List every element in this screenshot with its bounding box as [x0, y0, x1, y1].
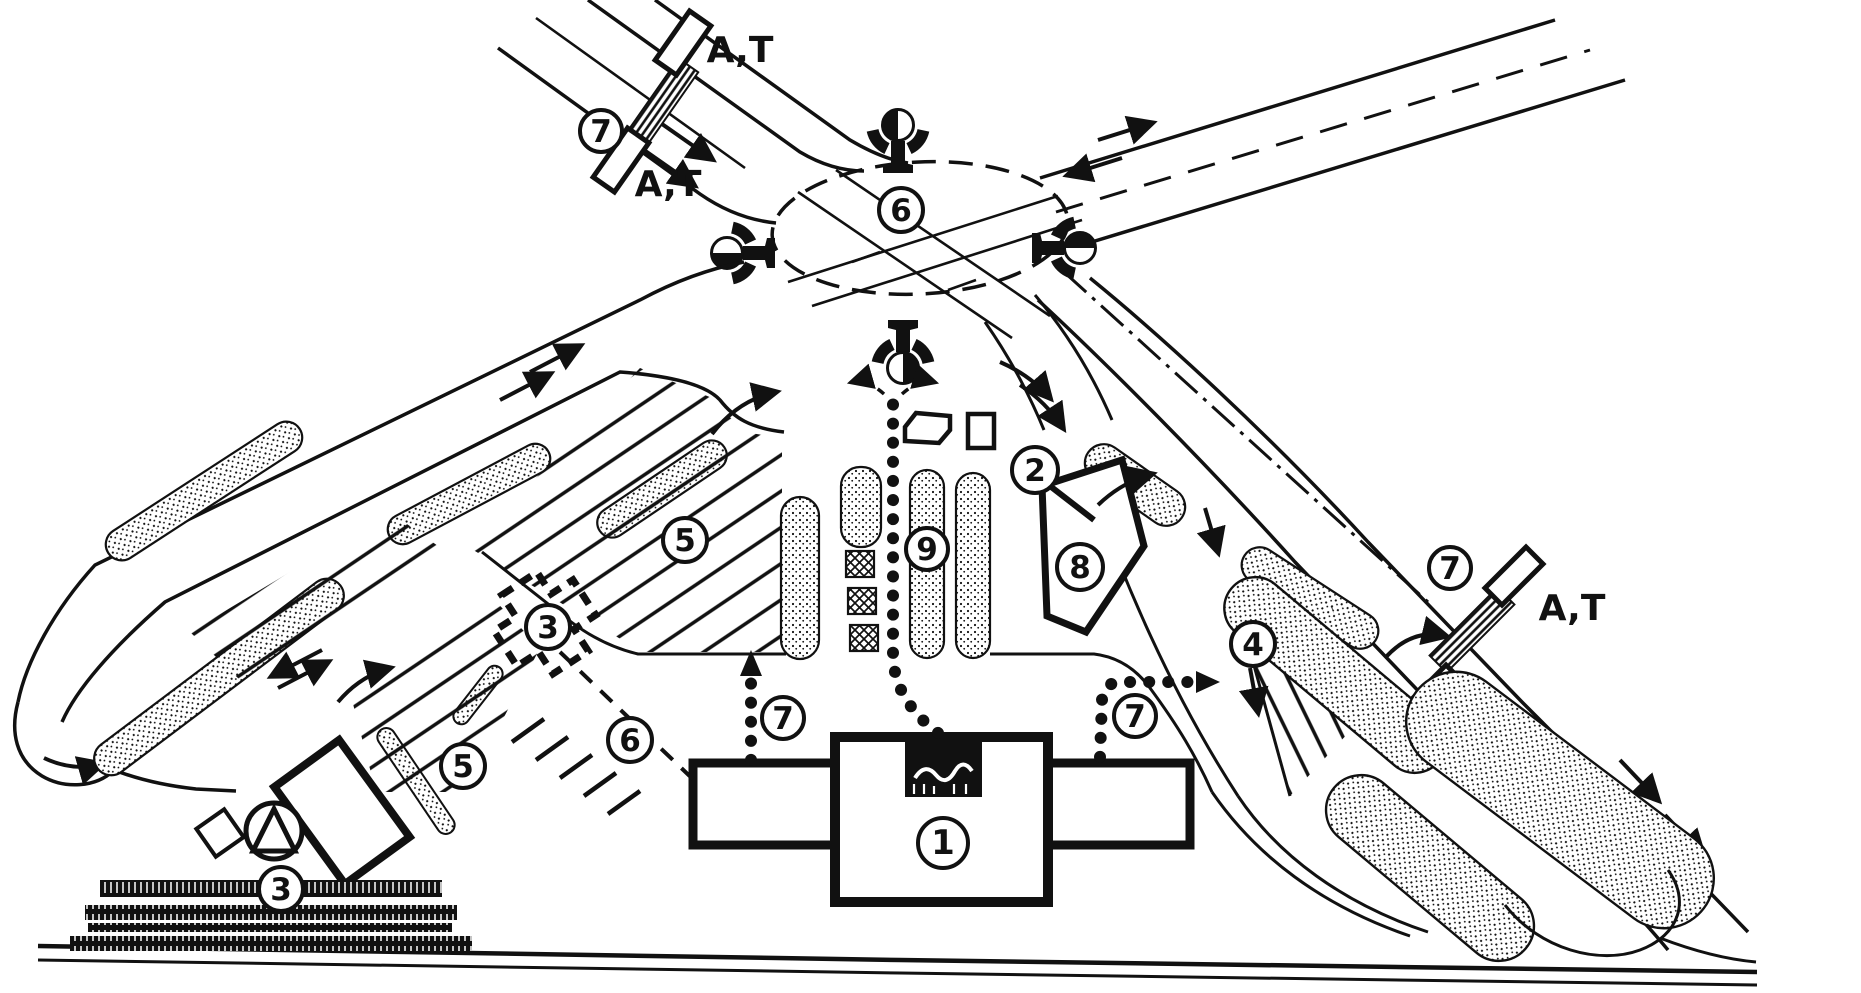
marker-6b-label: 6 — [619, 723, 641, 759]
stop-label-top-left-near: A,T — [635, 164, 702, 205]
marker-7a-label: 7 — [590, 114, 612, 150]
stop-label-top-left-far: A,T — [707, 30, 774, 71]
marker-8-label: 8 — [1069, 550, 1091, 586]
marker-7b-label: 7 — [772, 701, 794, 737]
signal-icon-south — [878, 320, 929, 384]
marker-4: 4 — [1231, 622, 1275, 666]
marker-5a: 5 — [663, 518, 707, 562]
kiosk-structures — [905, 413, 994, 448]
marker-8: 8 — [1057, 544, 1103, 590]
crossing-refuge-square — [848, 588, 876, 614]
site-plan-figure: A,T A,T — [0, 0, 1861, 993]
marker-7a: 7 — [580, 110, 622, 152]
signal-icon-west — [712, 228, 776, 279]
marker-6a-label: 6 — [890, 193, 912, 229]
bus-stop-right-upper — [1485, 547, 1543, 605]
marker-3a-label: 3 — [537, 610, 559, 646]
bus-stop-top-left-far — [655, 11, 711, 75]
road-arm-top-right — [1040, 20, 1625, 248]
marker-1-label: 1 — [931, 823, 955, 863]
marker-1: 1 — [918, 818, 968, 868]
crossing-refuge-square — [850, 625, 878, 651]
footpath-right-arrowhead — [1196, 671, 1220, 693]
marker-7d: 7 — [1429, 547, 1471, 589]
site-plan-svg: A,T A,T — [0, 0, 1861, 993]
marker-3a: 3 — [526, 605, 570, 649]
stop-label-right-upper: A,T — [1539, 588, 1606, 629]
marker-9-label: 9 — [916, 532, 938, 568]
marker-2-label: 2 — [1024, 453, 1046, 489]
signal-icon-east — [1032, 223, 1096, 274]
crossing-refuge-square — [846, 551, 874, 577]
marker-5b: 5 — [441, 744, 485, 788]
marker-7d-label: 7 — [1439, 551, 1461, 587]
marker-5b-label: 5 — [452, 749, 474, 785]
marker-7b: 7 — [762, 697, 804, 739]
marker-4-label: 4 — [1242, 627, 1264, 663]
marker-6a: 6 — [879, 188, 923, 232]
marker-7c: 7 — [1114, 695, 1156, 737]
parking-row-islands — [781, 467, 990, 659]
marker-3b-label: 3 — [270, 872, 292, 908]
marker-5a-label: 5 — [674, 523, 696, 559]
marker-7c-label: 7 — [1124, 699, 1146, 735]
marker-3b: 3 — [259, 867, 303, 911]
marker-9: 9 — [906, 528, 948, 570]
marker-2: 2 — [1012, 447, 1058, 493]
marker-6b: 6 — [608, 718, 652, 762]
